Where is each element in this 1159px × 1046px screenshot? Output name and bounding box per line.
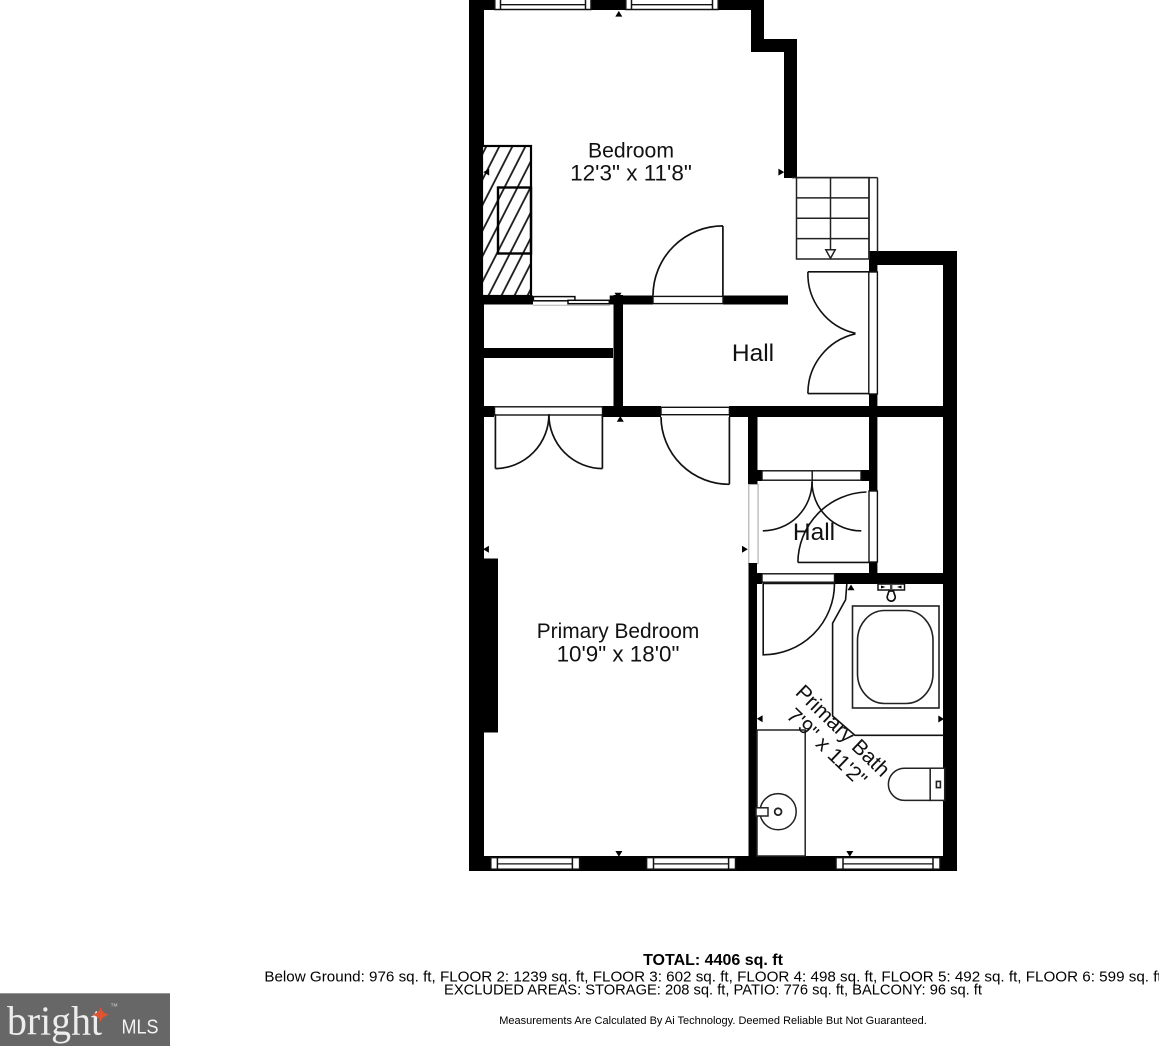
svg-text:Hall: Hall [732,340,774,367]
svg-text:12'3" x 11'8": 12'3" x 11'8" [570,161,692,186]
svg-text:EXCLUDED AREAS: STORAGE: 208 s: EXCLUDED AREAS: STORAGE: 208 sq. ft, PAT… [444,983,982,999]
svg-text:Bedroom: Bedroom [588,140,674,163]
svg-text:TOTAL: 4406 sq. ft: TOTAL: 4406 sq. ft [643,952,784,969]
svg-text:Measurements Are Calculated By: Measurements Are Calculated By Ai Techno… [499,1015,927,1027]
svg-text:Primary Bedroom: Primary Bedroom [537,620,700,643]
svg-text:10'9" x 18'0": 10'9" x 18'0" [557,642,680,667]
svg-text:bright: bright [7,998,103,1044]
svg-text:MLS: MLS [122,1016,159,1039]
svg-text:™: ™ [110,1002,118,1011]
svg-text:Hall: Hall [793,519,835,546]
